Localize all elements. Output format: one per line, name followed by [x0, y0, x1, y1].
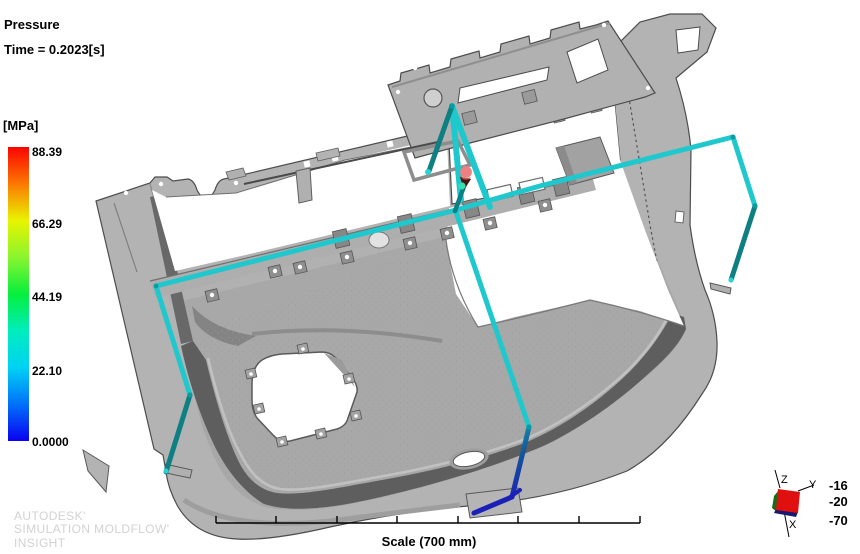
svg-text:66.29: 66.29 [32, 217, 62, 231]
svg-text:22.10: 22.10 [32, 364, 62, 378]
svg-text:Scale (700 mm): Scale (700 mm) [382, 534, 477, 549]
svg-text:Time = 0.2023[s]: Time = 0.2023[s] [4, 42, 105, 57]
svg-text:44.19: 44.19 [32, 290, 62, 304]
svg-text:-16: -16 [829, 478, 848, 493]
svg-text:Z: Z [781, 474, 788, 486]
svg-text:[MPa]: [MPa] [3, 118, 38, 133]
svg-text:88.39: 88.39 [32, 145, 62, 159]
svg-text:Pressure: Pressure [4, 17, 60, 32]
svg-text:AUTODESK': AUTODESK' [14, 509, 86, 523]
svg-text:SIMULATION MOLDFLOW': SIMULATION MOLDFLOW' [14, 522, 169, 536]
svg-text:INSIGHT: INSIGHT [14, 536, 66, 550]
svg-text:Y: Y [809, 479, 817, 491]
svg-text:X: X [789, 519, 797, 531]
svg-text:-20: -20 [829, 494, 848, 509]
svg-text:-70: -70 [829, 513, 848, 528]
svg-text:0.0000: 0.0000 [32, 435, 69, 449]
